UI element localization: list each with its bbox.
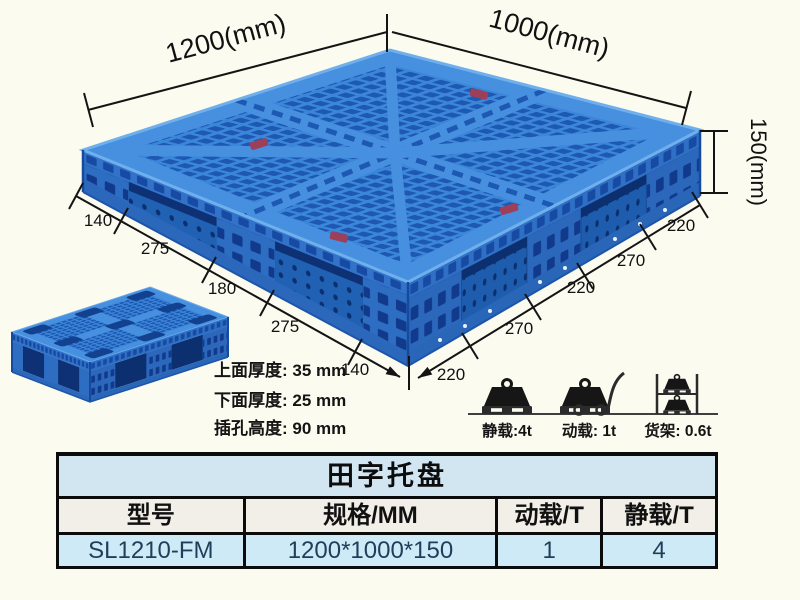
cell-static-load-value: 4 [600,535,715,566]
spec-table: 田字托盘 型号 规格/MM 动载/T 静载/T SL1210-FM 1200*1… [56,452,718,569]
svg-text:270: 270 [505,319,533,338]
height-dimension-label: 150(mm) [746,118,771,206]
header-dynamic-load: 动载/T [495,499,600,532]
cell-dynamic-load-value: 1 [495,535,600,566]
fork-height-note: 插孔高度: 90 mm [214,418,346,438]
svg-text:220: 220 [667,216,695,235]
thickness-notes: 上面厚度: 35 mm 下面厚度: 25 mm 插孔高度: 90 mm [214,360,346,438]
spec-table-header-row: 型号 规格/MM 动载/T 静载/T [59,496,715,532]
static-load-label: 静载:4t [482,421,532,440]
product-spec-sheet: 1200(mm) 1000(mm) 150(mm) 140 275 180 27… [0,0,800,600]
small-pallet-illustration [12,287,228,402]
svg-text:270: 270 [617,251,645,270]
dynamic-load-label: 动载: 1t [562,422,616,440]
rack-load-label: 货架: 0.6t [644,421,711,440]
bottom-thickness-note: 下面厚度: 25 mm [214,390,346,410]
static-load-icon [482,380,532,415]
svg-text:140: 140 [84,211,112,230]
svg-text:275: 275 [271,317,299,336]
cell-model-value: SL1210-FM [59,535,243,566]
svg-text:220: 220 [437,365,465,384]
svg-text:275: 275 [141,239,169,258]
spec-table-title: 田字托盘 [59,456,715,496]
length-dimension-label: 1200(mm) [162,8,289,69]
header-static-load: 静载/T [600,499,715,532]
cell-size-value: 1200*1000*150 [243,535,496,566]
svg-text:180: 180 [208,279,236,298]
pallet-diagram: 1200(mm) 1000(mm) 150(mm) 140 275 180 27… [0,0,800,452]
top-thickness-note: 上面厚度: 35 mm [214,360,346,380]
svg-text:220: 220 [567,278,595,297]
spec-table-data-row: SL1210-FM 1200*1000*150 1 4 [59,532,715,566]
width-dimension-label: 1000(mm) [486,3,613,64]
header-model: 型号 [59,499,243,532]
rack-load-icon [657,374,697,415]
header-size: 规格/MM [243,499,496,532]
dynamic-load-icon [560,373,624,415]
load-rating-icons: 静载:4t 动载: 1t 货架: 0.6t [468,373,718,440]
